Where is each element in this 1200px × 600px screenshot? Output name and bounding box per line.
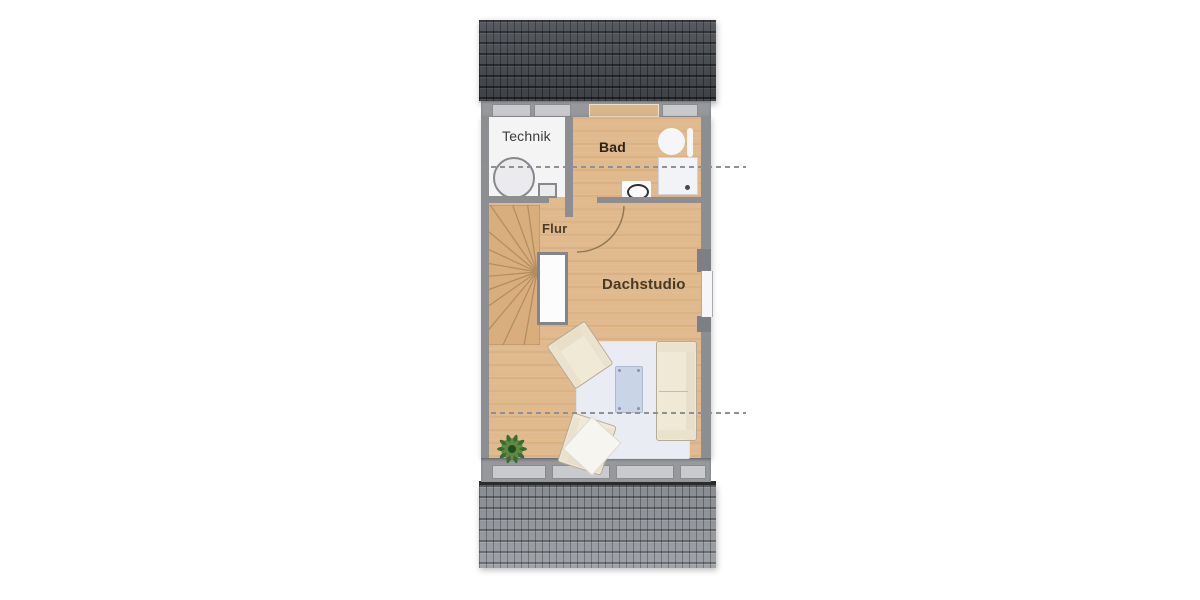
wall-technik-bottom: [481, 196, 549, 203]
window-bottom-1: [492, 465, 546, 479]
table-leg: [637, 369, 640, 372]
wall-flur-stub: [565, 204, 573, 217]
sofa-armrest-top: [658, 343, 696, 352]
stair-shaft: [537, 252, 568, 325]
window-top-2: [534, 104, 571, 117]
room-label-dachstudio: Dachstudio: [602, 276, 686, 293]
floor-plan-canvas: Technik Bad Flur Dachstudio: [0, 0, 1200, 600]
sofa: [656, 341, 697, 441]
height-line-lower: [482, 412, 746, 414]
wall-band-top: [481, 101, 711, 117]
roof-top-tiles: [479, 20, 716, 103]
wall-bad-bottom: [597, 197, 701, 203]
room-label-flur: Flur: [542, 221, 567, 236]
table-leg: [618, 407, 621, 410]
wall-stub-window-lower: [697, 316, 711, 332]
table-leg: [637, 407, 640, 410]
coffee-table: [615, 366, 643, 413]
room-label-bad: Bad: [599, 139, 626, 155]
shower-tray: [658, 157, 698, 195]
height-line-upper: [482, 166, 746, 168]
window-bottom-3: [616, 465, 674, 479]
sofa-armrest-bottom: [658, 430, 696, 439]
room-label-technik: Technik: [502, 128, 551, 144]
sofa-cushion-divider: [659, 391, 688, 392]
window-top-1: [492, 104, 531, 117]
storage-tank: [493, 157, 535, 199]
window-top-3: [589, 104, 659, 117]
roof-bottom-tiles: [479, 485, 716, 568]
window-right: [701, 271, 713, 317]
window-bottom-4: [680, 465, 706, 479]
wall-left: [481, 117, 489, 458]
window-top-4: [662, 104, 698, 117]
potted-plant: [495, 432, 529, 466]
winder-staircase: [486, 205, 540, 345]
washbasin: [658, 128, 685, 155]
towel-rail: [687, 128, 693, 157]
wall-technik-bad: [565, 117, 573, 204]
sofa-backrest: [686, 344, 695, 440]
shower-drain: [685, 185, 690, 190]
wall-stub-window-upper: [697, 249, 711, 272]
table-leg: [618, 369, 621, 372]
